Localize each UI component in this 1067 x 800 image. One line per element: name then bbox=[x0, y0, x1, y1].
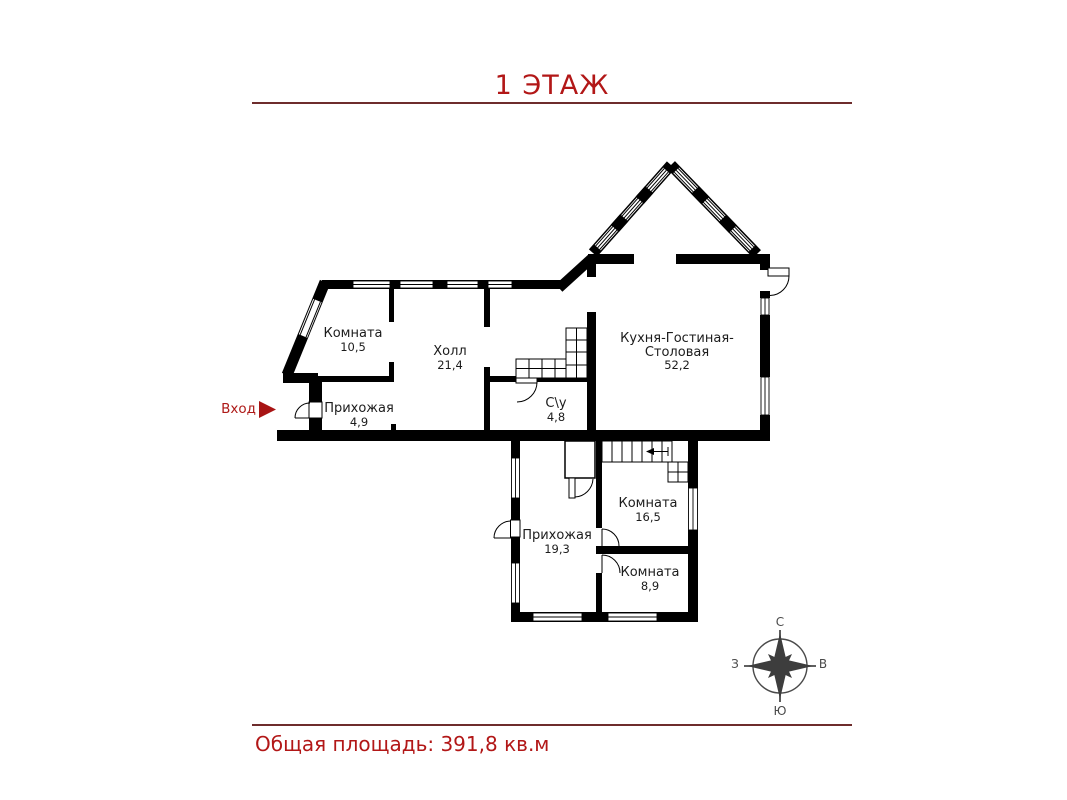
room-name-line1: Кухня-Гостиная- bbox=[620, 332, 734, 346]
stairs-lower bbox=[602, 441, 688, 482]
compass-north-label: С bbox=[771, 615, 789, 629]
compass-rose-icon bbox=[744, 630, 816, 702]
entrance-arrow-icon bbox=[259, 401, 276, 418]
room-label-prihozhaya-49: Прихожая 4,9 bbox=[324, 402, 394, 429]
stairs-upper bbox=[516, 328, 587, 378]
room-area: 19,3 bbox=[522, 543, 592, 556]
room-label-sanuzel: С\у 4,8 bbox=[545, 397, 566, 424]
room-area: 4,9 bbox=[324, 416, 394, 429]
room-name: С\у bbox=[545, 397, 566, 411]
total-area-text: Общая площадь: 391,8 кв.м bbox=[255, 732, 549, 756]
room-label-kitchen: Кухня-Гостиная- Столовая 52,2 bbox=[620, 332, 734, 372]
room-name: Комната bbox=[324, 327, 383, 341]
compass-west-label: З bbox=[726, 657, 744, 671]
room-name: Комната bbox=[621, 566, 680, 580]
floor-plan-page: 1 ЭТАЖ bbox=[0, 0, 1067, 800]
room-area: 21,4 bbox=[433, 359, 466, 372]
footer-rule bbox=[252, 724, 852, 726]
room-name: Прихожая bbox=[522, 529, 592, 543]
room-area: 8,9 bbox=[621, 580, 680, 593]
room-area: 52,2 bbox=[620, 359, 734, 372]
room-area: 4,8 bbox=[545, 411, 566, 424]
room-label-komnata-165: Комната 16,5 bbox=[619, 497, 678, 524]
room-name: Комната bbox=[619, 497, 678, 511]
room-area: 10,5 bbox=[324, 341, 383, 354]
room-label-prihozhaya-193: Прихожая 19,3 bbox=[522, 529, 592, 556]
room-name-line2: Столовая bbox=[620, 346, 734, 360]
bay-window-walls bbox=[593, 165, 757, 254]
entrance-label: Вход bbox=[206, 401, 256, 417]
room-name: Холл bbox=[433, 345, 466, 359]
room-name: Прихожая bbox=[324, 402, 394, 416]
compass-east-label: В bbox=[814, 657, 832, 671]
floor-plan-drawing bbox=[0, 0, 1067, 800]
compass-south-label: Ю bbox=[771, 704, 789, 718]
room-label-komnata-89: Комната 8,9 bbox=[621, 566, 680, 593]
room-label-holl: Холл 21,4 bbox=[433, 345, 466, 372]
under-stair-closet bbox=[565, 441, 595, 498]
room-label-komnata-105: Комната 10,5 bbox=[324, 327, 383, 354]
room-area: 16,5 bbox=[619, 511, 678, 524]
